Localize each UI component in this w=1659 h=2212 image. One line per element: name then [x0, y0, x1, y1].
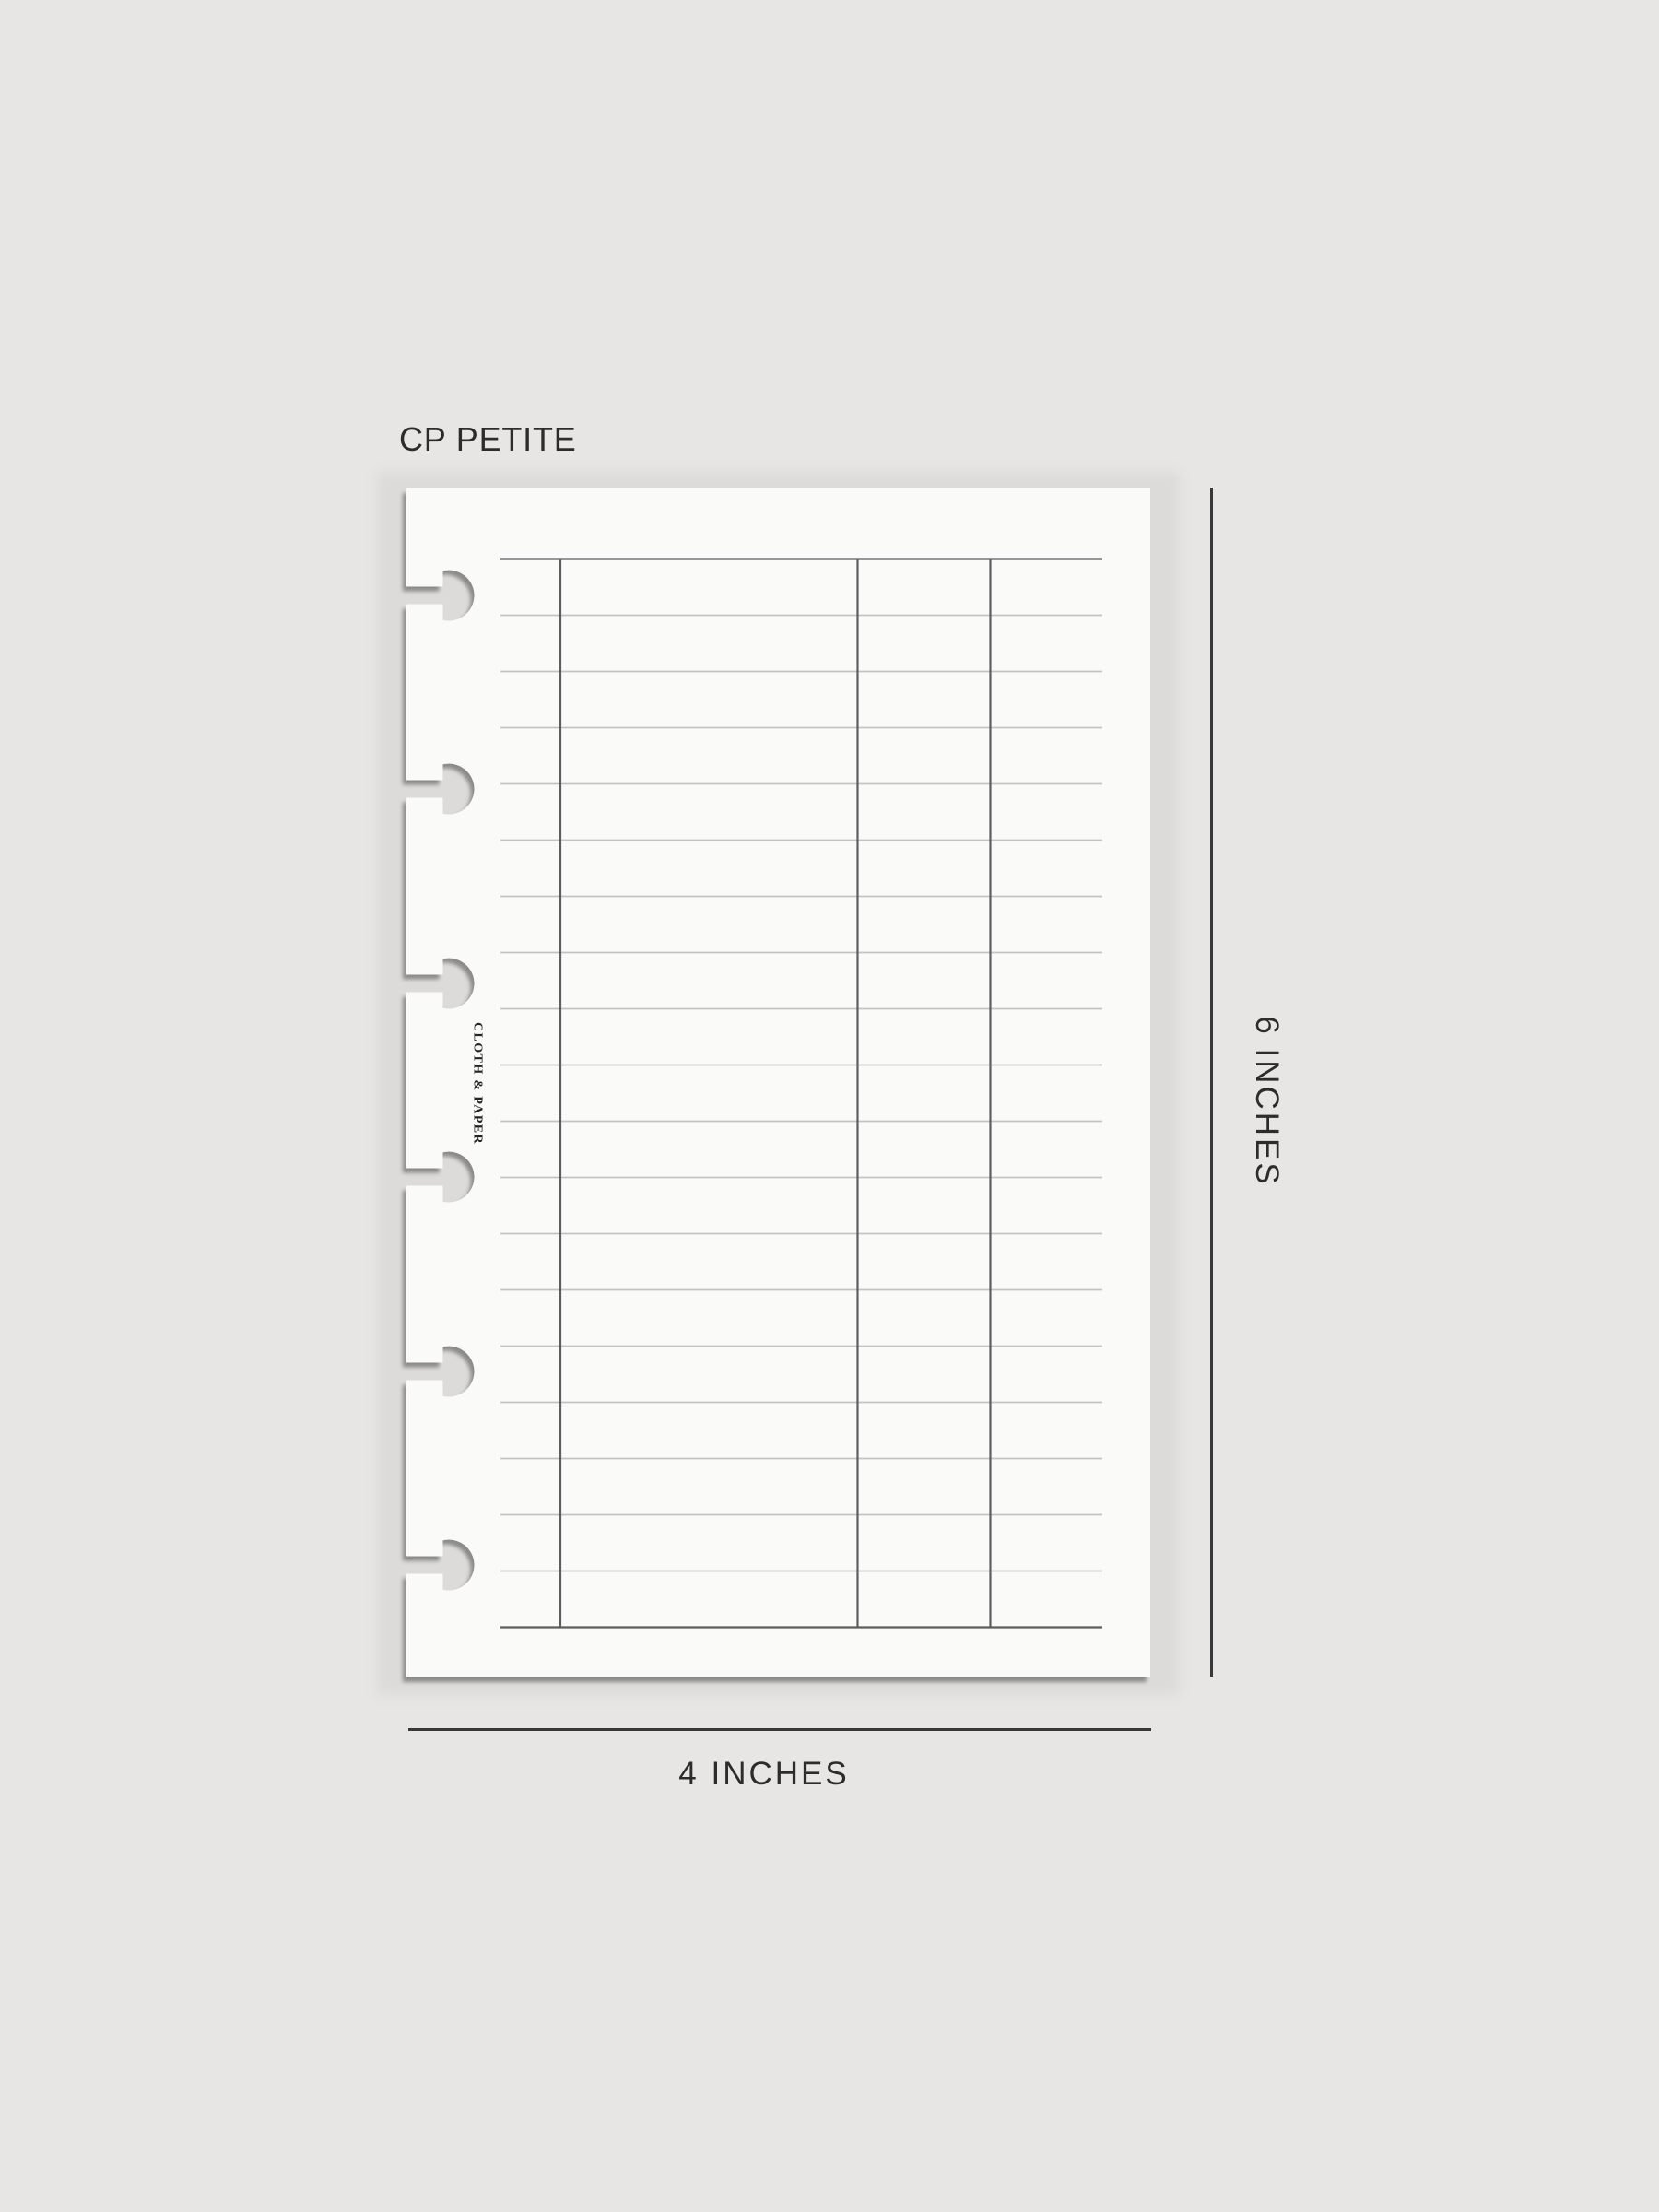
svg-text:CLOTH & PAPER: CLOTH & PAPER: [471, 1022, 485, 1145]
